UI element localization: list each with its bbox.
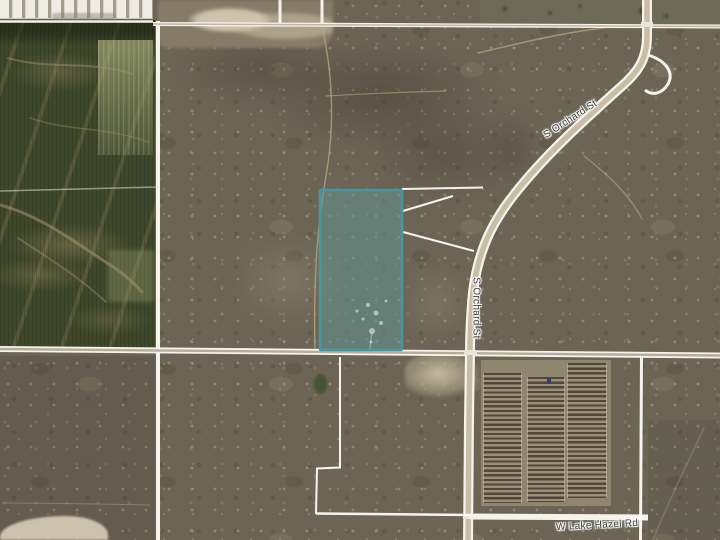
field-division-line bbox=[0, 187, 158, 191]
highlighted-parcel[interactable] bbox=[320, 190, 402, 350]
road-junction bbox=[464, 350, 477, 355]
road-junction bbox=[641, 22, 653, 27]
s-orchard-st-road-edge bbox=[468, 0, 647, 540]
map-vector-overlay bbox=[0, 0, 720, 540]
satellite-map[interactable]: S Orchard St S Orchard St W Lake Hazel R… bbox=[0, 0, 720, 540]
field-wash-trails bbox=[0, 58, 148, 302]
turnaround-loop-road bbox=[645, 55, 670, 93]
w-lake-hazel-rd bbox=[470, 517, 648, 518]
road-label-s-orchard-st: S Orchard St bbox=[471, 277, 481, 338]
